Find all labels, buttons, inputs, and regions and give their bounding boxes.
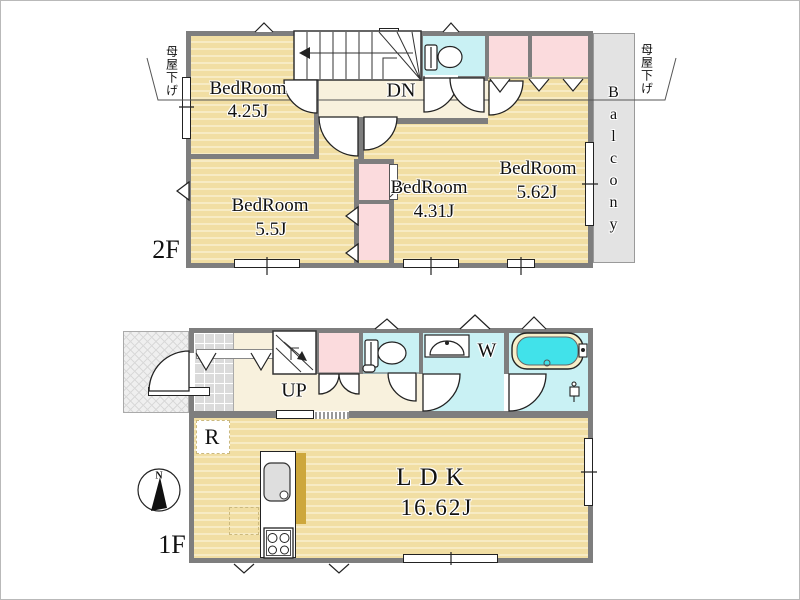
wall [419, 33, 423, 77]
wall [189, 393, 194, 563]
wall [189, 411, 593, 418]
wall [189, 558, 593, 563]
wall [359, 331, 363, 374]
entrance-porch [123, 331, 189, 413]
comb-strip [314, 411, 349, 419]
window [182, 77, 191, 139]
room-name-bedroom-431: BedRoom [390, 177, 467, 199]
room-name-bedroom-562: BedRoom [499, 158, 576, 180]
closet-2f-a [488, 33, 528, 76]
stairs-up-label: UP [281, 380, 307, 403]
window [403, 554, 498, 563]
wall [186, 31, 191, 268]
wall [358, 117, 364, 159]
wall [419, 333, 423, 374]
stairs-dn-label: DN [387, 80, 416, 103]
kitchen-counter [260, 451, 296, 558]
toilet-room-1f [363, 333, 419, 374]
kitchen-counter-accent [296, 453, 306, 524]
wall [186, 154, 319, 159]
wall [485, 33, 489, 77]
room-name-bedroom-425: BedRoom [209, 78, 286, 100]
room-size-bedroom-562: 5.62J [517, 182, 558, 204]
room-size-bedroom-431: 4.31J [414, 201, 455, 223]
washer-label: W [478, 340, 497, 363]
room-size-bedroom-55: 5.5J [255, 219, 286, 241]
roof-note-left: 母屋下げ [164, 45, 181, 97]
table-placeholder [229, 507, 259, 535]
floor-plan-canvas: BedRoom 4.25J BedRoom 5.5J BedRoom 4.31J… [0, 0, 800, 600]
window [234, 259, 300, 268]
wall [189, 328, 194, 353]
floor-label-2f: 2F [152, 235, 179, 265]
window [379, 28, 399, 37]
refrigerator-label: R [205, 424, 220, 450]
door-gap [425, 75, 458, 82]
entrance-door-leaf [148, 387, 210, 396]
window-balcony [585, 142, 594, 226]
wall [314, 76, 319, 159]
floor-label-1f: 1F [158, 530, 185, 560]
compass-north-label: N [155, 471, 162, 482]
ldk-fill [194, 416, 588, 559]
ldk-name-label: LDK [396, 464, 471, 492]
pass-through-window [276, 410, 314, 419]
genkan-tiles [194, 333, 234, 411]
roof-note-right: 母屋下げ [639, 43, 656, 95]
wall [315, 331, 319, 374]
window [507, 259, 535, 268]
closet-2f-d [359, 204, 389, 260]
window [403, 259, 459, 268]
balcony-label: Balcony [604, 84, 622, 238]
ldk-size-label: 16.62J [401, 495, 474, 521]
bathroom [509, 333, 588, 411]
wall [528, 33, 532, 77]
wall [504, 333, 509, 374]
room-name-bedroom-55: BedRoom [231, 195, 308, 217]
toilet-room-2f [421, 33, 485, 76]
wall [189, 328, 593, 333]
closet-2f-b [532, 33, 588, 76]
closet-1f [319, 333, 359, 374]
wall [396, 118, 488, 124]
window [584, 438, 593, 506]
genkan-step [196, 349, 280, 359]
room-size-bedroom-425: 4.25J [228, 101, 269, 123]
closet-2f-c [359, 164, 389, 200]
